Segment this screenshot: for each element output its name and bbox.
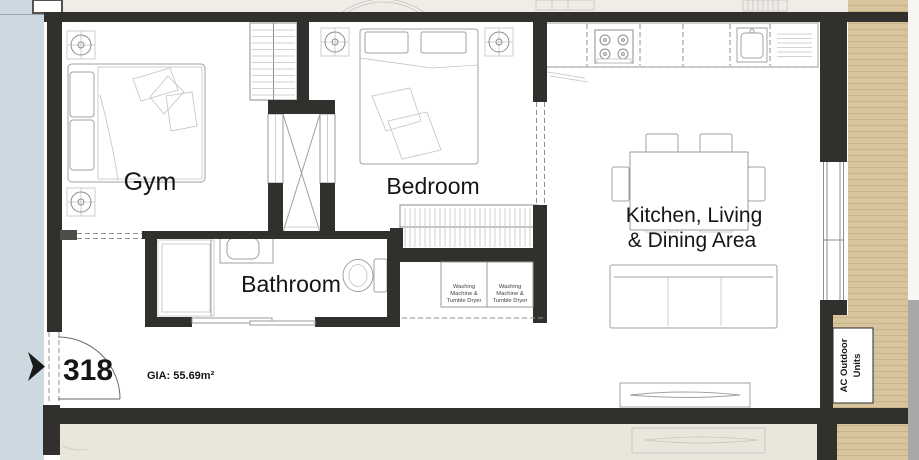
washer-right-line1: Washing: [499, 284, 521, 290]
bathroom-label: Bathroom: [241, 271, 341, 297]
corridor-floor: [60, 424, 817, 460]
floor-plan: Washing Machine & Tumble Dryer Washing M…: [0, 0, 919, 460]
ac-units-label-line1: AC Outdoor: [839, 338, 850, 392]
living-label-line2: & Dining Area: [628, 229, 757, 252]
floor-plan-page: Washing Machine & Tumble Dryer Washing M…: [0, 0, 919, 460]
washer-right-line3: Tumble Dryer: [493, 298, 528, 304]
base-surfaces: [0, 0, 919, 460]
right-edge-gray: [908, 300, 919, 460]
gym-label: Gym: [124, 168, 177, 196]
balcony-door: [821, 162, 846, 300]
washer-left-line1: Washing: [453, 284, 475, 290]
washer-right-line2: Machine &: [496, 291, 524, 297]
ac-outdoor-units-box: AC Outdoor Units: [833, 328, 873, 403]
unit-number: 318: [63, 354, 113, 387]
outside-left-area: [0, 0, 44, 460]
bedroom-label: Bedroom: [386, 173, 479, 199]
washer-closet: Washing Machine & Tumble Dryer Washing M…: [441, 262, 533, 307]
washer-left-line3: Tumble Dryer: [447, 298, 482, 304]
gia-label: GIA: 55.69m²: [147, 370, 215, 382]
ac-units-label-line2: Units: [852, 354, 863, 378]
neighbor-unit-floor: [44, 0, 848, 12]
washer-left-line2: Machine &: [450, 291, 478, 297]
living-label-line1: Kitchen, Living: [626, 204, 763, 227]
right-edge-light: [908, 0, 919, 300]
